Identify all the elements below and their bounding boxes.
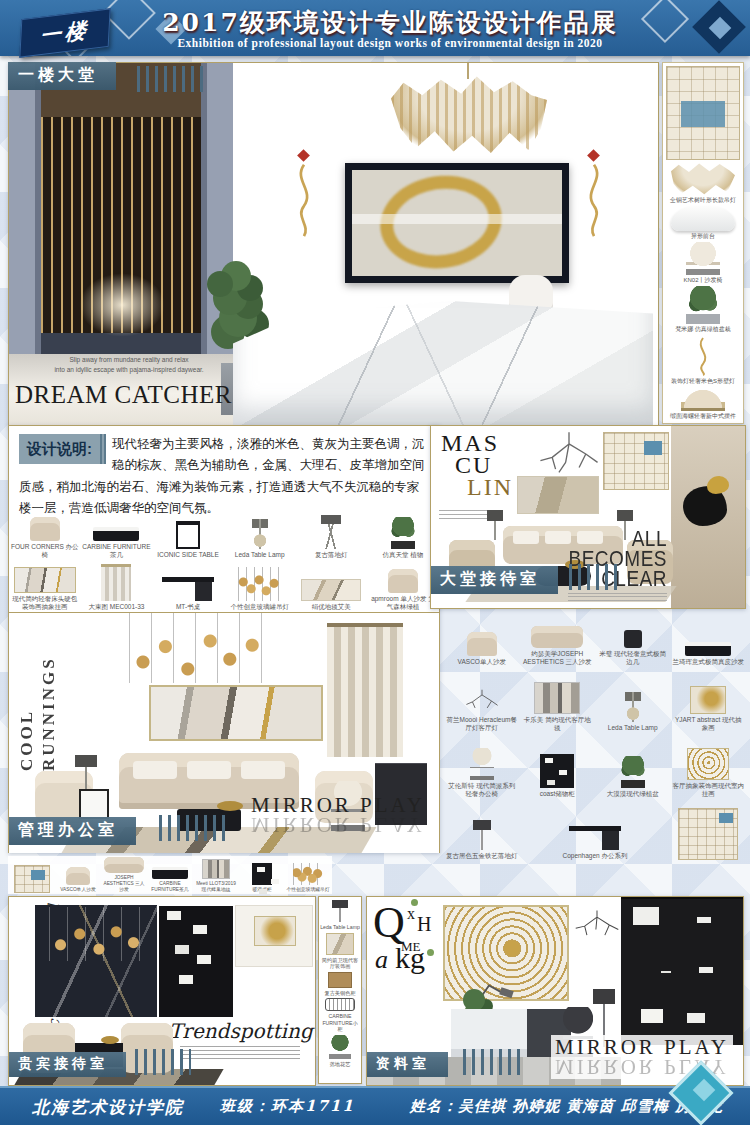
- gold-wall-sconce: [291, 151, 317, 247]
- coffee-table-thumb: [93, 527, 139, 541]
- masculin-deco-text: MAS CU LIN: [441, 432, 513, 498]
- lobby-tagline: Slip away from mundane reality and relax…: [15, 355, 243, 375]
- marble-art-thumb: [14, 567, 76, 593]
- tray-table-thumb: [685, 642, 731, 656]
- badge-bars-decoration: [463, 1049, 523, 1075]
- product-label: 现代简约轻奢床头硬包装饰画抽象挂画: [10, 595, 80, 611]
- vertical-text-line: RUNNINGS: [39, 621, 59, 771]
- mirror-play-reflection: MIRROR PLAY: [251, 812, 425, 837]
- green-dot-decoration: [411, 899, 418, 906]
- plant-thumb: [621, 756, 645, 788]
- product-label: 客厅抽象装饰画现代室内挂画: [672, 782, 744, 798]
- product-label: 个性创意玻璃罐吊灯: [230, 603, 289, 611]
- vip-section-badge: 贵宾接待室: [8, 1052, 126, 1077]
- rug-thumb: [301, 579, 361, 601]
- office-product-grid: VASCO单人沙发 约瑟美学JOSEPH AESTHETICS 三人沙发 米璧 …: [446, 610, 744, 860]
- archive-room-panel: Q x H ME a kg MIRROR PLAY MIRROR PLAY 资料…: [366, 896, 744, 1086]
- reception-wall-art: [517, 476, 599, 514]
- product-label: 卡乐美 简约现代客厅地毯: [521, 716, 593, 732]
- lounge-chair-thumb: [686, 242, 720, 275]
- lobby-panel: Slip away from mundane reality and relax…: [8, 62, 659, 427]
- plant-thumb: [686, 286, 720, 324]
- deco-letter: x: [407, 905, 415, 923]
- pendant-lights-image: [129, 613, 269, 683]
- office-section-badge: 管理办公室: [9, 817, 136, 845]
- cabinet-thumb: [328, 972, 352, 988]
- glass-pendant-thumb: [238, 567, 282, 601]
- exhibition-poster: 2017级环境设计专业陈设设计作品展 Exhibition of profess…: [0, 0, 750, 1125]
- archive-bookshelf: [621, 897, 743, 1045]
- reception-panel: MAS CU LIN ALL BECOMES CLEAR 大堂接待室: [430, 425, 746, 609]
- office-table-lamp: [75, 755, 97, 789]
- product-label: 复古落地灯: [315, 551, 348, 559]
- faceted-reception-desk: [233, 301, 653, 426]
- product-label: 兰琦珲意式极简真皮沙发: [672, 658, 744, 666]
- storage-shelf-thumb: [540, 754, 574, 788]
- sconce-curve: [291, 151, 317, 239]
- tagline-line1: Slip away from mundane reality and relax: [15, 355, 243, 365]
- product-label: CARBINE FURNITURE茶几: [148, 881, 192, 893]
- chandelier-wire: [467, 63, 469, 79]
- sofa-thumb: [104, 857, 144, 873]
- school-name: 北海艺术设计学院: [32, 1096, 184, 1119]
- badge-bars-decoration: [159, 815, 229, 841]
- product-label: 绢优地毯艾美: [312, 603, 351, 611]
- product-label: apmroom 单人沙发 元气森林绿植: [368, 595, 438, 611]
- branch-lamp-thumb: [460, 688, 504, 714]
- product-label: CARBINE FURNITURE茶几: [82, 543, 152, 559]
- side-table-thumb: [624, 630, 642, 648]
- gold-ring-painting: [345, 163, 569, 283]
- product-label: 艾伦斯特 现代简派系列轻奢办公椅: [446, 782, 518, 798]
- plant-thumb: [329, 1035, 351, 1059]
- item-label: 装饰灯轻奢米色S形壁灯: [671, 378, 735, 385]
- product-label: 约瑟美学JOSEPH AESTHETICS 三人沙发: [521, 650, 593, 666]
- coffee-table-thumb: [152, 867, 188, 879]
- office-chair-thumb: [470, 748, 494, 780]
- s-wall-lamp-thumb: [688, 336, 718, 376]
- tagline-line2: into an idyllic escape with pajama-inspi…: [15, 365, 243, 375]
- product-label: 荷兰Moooi Heracleum餐厅灯客厅灯: [446, 716, 518, 732]
- accessory-strip: Leda Table Lamp 简约前卫现代客厅装饰画 复古美铜色柜 CARBI…: [318, 896, 362, 1084]
- gold-pendants-image: [49, 907, 145, 961]
- header-banner: 2017级环境设计专业陈设设计作品展 Exhibition of profess…: [0, 0, 750, 56]
- sofa-thumb: [531, 626, 583, 648]
- item-label: 异形前台: [691, 233, 715, 240]
- armchair-thumb: [388, 569, 418, 593]
- badge-bars-decoration: [137, 66, 207, 92]
- lobby-items-column: 全铜艺术树叶形长款吊灯 异形前台 KN02丨沙发椅 梵米娜 仿真绿植盆栽 装饰灯…: [662, 62, 744, 424]
- black-gold-sculpture: [683, 486, 727, 526]
- potted-plant-image: [207, 271, 233, 297]
- poster-title: 2017级环境设计专业陈设设计作品展: [90, 6, 690, 39]
- office-side-table: [79, 789, 109, 819]
- gold-wall-sconce: [581, 151, 607, 247]
- lobby-product-grid: FOUR CORNERS 办公椅 CARBINE FURNITURE茶几 ICO…: [9, 508, 439, 612]
- branch-chandelier-image: [569, 903, 625, 951]
- badge-bars-decoration: [569, 564, 619, 590]
- reception-floorplan: [603, 432, 669, 490]
- armchair-thumb: [66, 867, 90, 885]
- bookcase-thumb: [252, 863, 272, 885]
- footer-banner: 北海艺术设计学院 班级：环本1711 姓名：吴佳祺 孙婷妮 黄海茵 邱雪梅 房钊…: [0, 1086, 750, 1125]
- glass-pendant-thumb: [293, 863, 323, 885]
- office-room-photo: COOL RUNNINGS MIRROR PLAY MIRROR PLAY 管理…: [9, 612, 439, 853]
- side-table-thumb: [176, 521, 200, 549]
- white-display-unit: [235, 905, 313, 967]
- cool-runnings-vertical-text: COOL RUNNINGS: [17, 621, 59, 771]
- vip-product-row: VASCO单人沙发 JOSEPH AESTHETICS 三人沙发 CARBINE…: [8, 856, 332, 894]
- product-label: 复古美铜色柜: [324, 990, 355, 997]
- floor-badge-text: 一楼: [39, 16, 90, 50]
- table-lamp-thumb: [625, 692, 641, 722]
- product-label: YJART abstract 现代抽象画: [672, 716, 744, 732]
- writing-desk-thumb: [162, 577, 214, 601]
- chandelier-thumb: [671, 162, 735, 195]
- table-lamp-thumb: [332, 900, 348, 922]
- caption-lines-decoration: [568, 593, 667, 602]
- office-wall-art: [149, 685, 323, 741]
- archive-section-badge: 资料室: [366, 1052, 448, 1077]
- design-note-label: 设计说明:: [19, 434, 106, 464]
- curtain-image: [327, 623, 403, 757]
- leaf-chandelier-image: [391, 75, 547, 153]
- design-note: 设计说明: 现代轻奢为主要风格，淡雅的米色、黄灰为主要色调，沉稳的棕灰、黑色为辅…: [9, 426, 439, 508]
- vip-bookshelf: [159, 905, 233, 1017]
- deco-line: CU: [455, 454, 513, 476]
- lobby-section-badge: 一楼大堂: [8, 62, 116, 90]
- product-label: 米璧 现代轻奢意式极简边几: [597, 650, 669, 666]
- desk-set-thumb: [569, 826, 621, 850]
- striped-art-thumb: [534, 682, 580, 714]
- curtain-thumb: [101, 564, 131, 601]
- lobby-headline: DREAM CATCHER: [15, 381, 255, 409]
- product-label: VASCO单人沙发: [60, 887, 96, 893]
- product-label: 落地花艺: [330, 1061, 351, 1068]
- product-label: 简约前卫现代客厅装饰画: [320, 957, 360, 970]
- office-chair-thumb: [30, 517, 60, 541]
- deco-letter: H: [417, 913, 431, 936]
- product-label: Leda Table Lamp: [235, 551, 285, 559]
- left-column-panel: 设计说明: 现代轻奢为主要风格，淡雅的米色、黄灰为主要色调，沉稳的棕灰、黑色为辅…: [8, 425, 440, 853]
- light-glow: [79, 273, 165, 337]
- reception-section-badge: 大堂接待室: [430, 566, 558, 594]
- green-dot-decoration: [427, 949, 434, 956]
- product-label: Copenhagen 办公系列: [562, 852, 627, 860]
- sculpture-photo: [671, 426, 745, 608]
- product-label: coast储物柜: [540, 790, 575, 798]
- product-label: JOSEPH AESTHETICS 三人沙发: [102, 875, 146, 893]
- vip-floorplan-thumb: [14, 865, 50, 893]
- art-thumb: [326, 933, 354, 955]
- lobby-floorplan-thumb: [666, 66, 740, 160]
- rug-thumb: [202, 859, 230, 879]
- product-label: 个性创意玻璃罐吊灯: [286, 887, 329, 893]
- armchair-thumb: [467, 632, 497, 656]
- product-label: 复古黑色五金铁艺落地灯: [446, 852, 518, 860]
- product-label: Leda Table Lamp: [320, 924, 360, 931]
- bench-thumb: [325, 998, 355, 1011]
- shell-ornament-thumb: [681, 387, 725, 411]
- deco-line: LIN: [467, 476, 513, 498]
- office-floorplan-thumb: [678, 808, 738, 860]
- mirror-play-text: MIRROR PLAY MIRROR PLAY: [251, 793, 425, 837]
- sconce-curve: [581, 151, 607, 239]
- floor-lamp-thumb: [473, 820, 491, 850]
- trendspotting-script: Trendspotting: [169, 1019, 311, 1043]
- product-label: 大漠漠现代绿植盆: [607, 790, 659, 798]
- reception-chair: [509, 275, 553, 309]
- item-label: 缎面海螺轻奢新中式摆件: [670, 413, 736, 420]
- item-label: 梵米娜 仿真绿植盆栽: [675, 326, 731, 333]
- badge-bars-decoration: [135, 1049, 191, 1075]
- product-label: 大東图 MEC001-33: [88, 603, 144, 611]
- desk-plant: [463, 989, 485, 1011]
- vip-room-panel: Sección Personal Trendspotting 贵宾接待室: [8, 896, 316, 1086]
- deco-line: MAS: [441, 432, 513, 454]
- poster-subtitle: Exhibition of professional layout design…: [90, 37, 690, 49]
- item-label: 全铜艺术树叶形长款吊灯: [670, 197, 736, 204]
- product-label: FOUR CORNERS 办公椅: [10, 543, 80, 559]
- deco-letter: kg: [395, 941, 425, 975]
- table-lamp-thumb: [252, 519, 268, 549]
- plant-thumb: [391, 517, 415, 549]
- floor-lamp-thumb: [321, 515, 341, 549]
- product-label: Meeti LLOT3/2019 现代蜂巢地毯: [194, 881, 238, 893]
- caption-lines-decoration: [180, 1046, 300, 1062]
- product-label: VASCO单人沙发: [458, 658, 506, 666]
- item-label: KN02丨沙发椅: [683, 277, 722, 284]
- deco-letter: a: [375, 945, 388, 975]
- product-label: ICONIC SIDE TABLE: [157, 551, 219, 559]
- product-label: Leda Table Lamp: [608, 724, 658, 732]
- product-label: 暖灌书柜: [252, 887, 271, 893]
- product-label: MT-书桌: [176, 603, 200, 611]
- swirl-art-thumb: [687, 748, 729, 780]
- vertical-text-line: COOL: [17, 621, 37, 771]
- abstract-art-thumb: [690, 686, 726, 714]
- curved-desk-thumb: [671, 206, 735, 231]
- product-label: CARBINE FURNITURE小柜: [320, 1013, 360, 1033]
- class-text: 班级：环本1711: [220, 1097, 355, 1116]
- product-label: 仿真天堂 植物: [383, 551, 424, 559]
- reception-lamp-left: [487, 510, 503, 540]
